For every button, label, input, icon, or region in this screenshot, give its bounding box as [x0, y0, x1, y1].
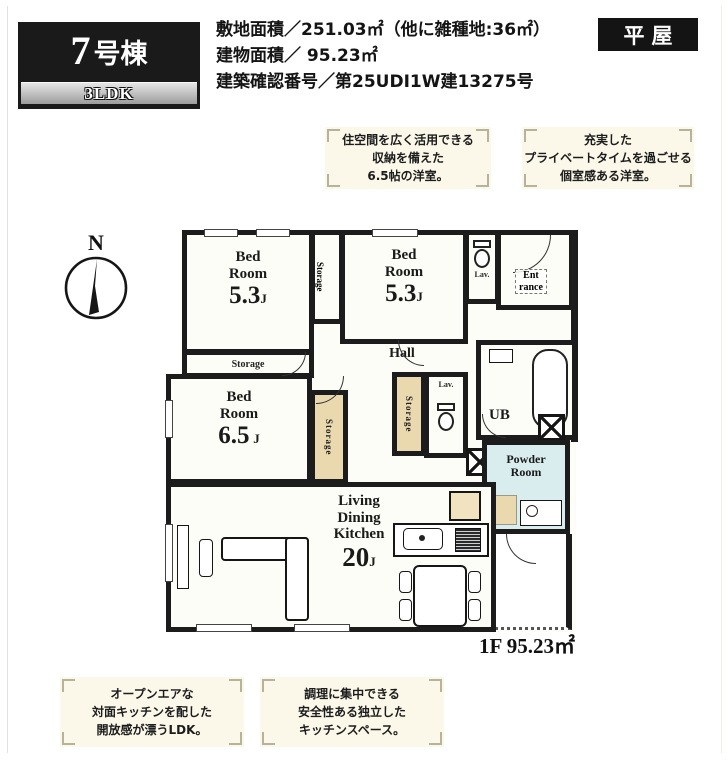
- chair: [468, 571, 481, 593]
- tv-board: [177, 525, 189, 589]
- room-name-line: Bed: [345, 247, 463, 264]
- corner-mark: [429, 679, 442, 692]
- building-area-line: 建物面積／ 95.23㎡: [216, 43, 606, 69]
- callout-line: 対面キッチンを配した: [92, 703, 212, 721]
- corner-mark: [476, 174, 489, 187]
- room-bedroom-nw: Bed Room 5.3J: [182, 230, 314, 354]
- callout-line: オープンエアな: [110, 685, 193, 703]
- chair: [399, 599, 412, 621]
- chair: [468, 599, 481, 621]
- bath-sink-icon: [489, 349, 513, 363]
- callout-line: 住空間を広く活用できる: [342, 131, 474, 149]
- corner-mark: [229, 732, 242, 745]
- door-arc: [506, 534, 536, 564]
- room-name-line: Room: [187, 266, 309, 283]
- side-table: [199, 539, 213, 577]
- callout-kitchen: 調理に集中できる 安全性ある独立した キッチンスペース。: [260, 677, 444, 747]
- window: [204, 229, 238, 237]
- corner-mark: [476, 129, 489, 142]
- door-arc: [513, 235, 551, 273]
- callout-private-room: 充実した プライベートタイムを過ごせる 個室感ある洋室。: [522, 127, 694, 189]
- refrigerator: [449, 491, 481, 521]
- stove-icon: [455, 528, 481, 552]
- room-lavatory-2: Lav.: [424, 372, 468, 458]
- corner-mark: [62, 732, 75, 745]
- floor-plan: Bed Room 5.3J Storage Storage Bed Room 5…: [164, 224, 600, 640]
- window: [256, 229, 290, 237]
- room-label: Bed Room 5.3J: [187, 249, 309, 310]
- room-storage-v2: Storage: [392, 372, 426, 456]
- corner-mark: [327, 174, 340, 187]
- window: [294, 624, 350, 632]
- callout-line: 安全性ある独立した: [298, 703, 406, 721]
- room-size: 6.5: [218, 422, 249, 449]
- callout-line: 充実した: [584, 131, 632, 149]
- unit-number-box: 7 号棟 3LDK: [18, 22, 200, 109]
- property-info: 敷地面積／251.03㎡（他に雑種地:36㎡） 建物面積／ 95.23㎡ 建築確…: [216, 17, 606, 95]
- confirmation-number-line: 建築確認番号／第25UDI1W建13275号: [216, 69, 606, 95]
- compass-icon: N: [60, 228, 132, 326]
- compass: N: [60, 228, 132, 326]
- pillar-x-icon: [538, 414, 565, 441]
- unit-number-suffix: 号棟: [94, 32, 148, 71]
- corner-mark: [327, 129, 340, 142]
- corner-mark: [429, 732, 442, 745]
- washbasin-icon: [520, 500, 562, 526]
- lavatory-label: Lav.: [429, 380, 463, 389]
- corner-mark: [262, 732, 275, 745]
- compass-north-label: N: [88, 230, 104, 255]
- corner-mark: [679, 129, 692, 142]
- room-storage-v1: Storage: [310, 230, 344, 324]
- room-size: 20: [342, 542, 369, 572]
- room-size: 5.3: [229, 282, 260, 309]
- site-area-line: 敷地面積／251.03㎡（他に雑種地:36㎡）: [216, 17, 606, 43]
- window: [372, 229, 418, 237]
- toilet-icon: [469, 240, 495, 268]
- window: [165, 400, 173, 438]
- callout-ldk: オープンエアな 対面キッチンを配した 開放感が漂うLDK。: [60, 677, 244, 747]
- rear-space: [488, 534, 572, 630]
- callout-line: 6.5帖の洋室。: [367, 167, 448, 185]
- room-size-unit: J: [416, 289, 423, 304]
- corner-mark: [524, 174, 537, 187]
- dining-table: [413, 565, 467, 627]
- storage-label: Storage: [397, 377, 421, 451]
- callout-line: キッチンスペース。: [299, 721, 405, 739]
- storage-label: Storage: [232, 359, 265, 370]
- room-name-line: Bed: [187, 249, 309, 266]
- kitchen-counter: [393, 523, 489, 557]
- single-story-badge: 平屋: [598, 18, 698, 51]
- room-name-line: Room: [345, 264, 463, 281]
- room-size-unit: J: [260, 291, 267, 306]
- room-lavatory-1: Lav.: [464, 230, 500, 304]
- room-name-line: Bed: [171, 389, 307, 406]
- callout-line: 調理に集中できる: [304, 685, 400, 703]
- room-entrance: Ent rance: [496, 230, 574, 310]
- floor-area-label: 1F 95.23㎡: [479, 630, 575, 660]
- corner-mark: [679, 174, 692, 187]
- storage-label: Storage: [315, 395, 343, 479]
- storage-label: Storage: [315, 235, 325, 319]
- unit-number: 7 号棟: [18, 22, 200, 80]
- callout-line: 開放感が漂うLDK。: [97, 721, 208, 739]
- callout-line: プライベートタイムを過ごせる: [524, 149, 692, 167]
- chair: [399, 571, 412, 593]
- room-name-line: Room: [171, 406, 307, 423]
- entrance-label: Ent rance: [515, 269, 547, 294]
- powder-label: Powder Room: [487, 453, 565, 479]
- room-label: Bed Room 6.5 J: [171, 389, 307, 450]
- toilet-icon: [429, 403, 463, 431]
- room-bedroom-n: Bed Room 5.3J: [340, 230, 468, 344]
- room-ldk: Living Dining Kitchen 20J: [166, 482, 496, 632]
- window: [196, 624, 252, 632]
- room-label: Bed Room 5.3J: [345, 247, 463, 308]
- room-storage-v3: Storage: [310, 390, 348, 484]
- unit-number-digit: 7: [71, 31, 91, 71]
- room-size-unit: J: [253, 431, 260, 446]
- room-bedroom-w: Bed Room 6.5 J: [166, 374, 312, 484]
- callout-bedroom-storage: 住空間を広く活用できる 収納を備えた 6.5帖の洋室。: [325, 127, 491, 189]
- corner-mark: [262, 679, 275, 692]
- corner-mark: [62, 679, 75, 692]
- corner-mark: [229, 679, 242, 692]
- corner-mark: [524, 129, 537, 142]
- room-size: 5.3: [385, 280, 416, 307]
- lavatory-label: Lav.: [469, 270, 495, 279]
- plan-type-label: 3LDK: [84, 84, 133, 104]
- plan-type-bar: 3LDK: [21, 82, 197, 104]
- callout-line: 収納を備えた: [372, 149, 444, 167]
- kitchen-sink-icon: [403, 528, 443, 550]
- callout-line: 個室感ある洋室。: [560, 167, 656, 185]
- window: [165, 524, 173, 582]
- room-size-unit: J: [369, 554, 376, 569]
